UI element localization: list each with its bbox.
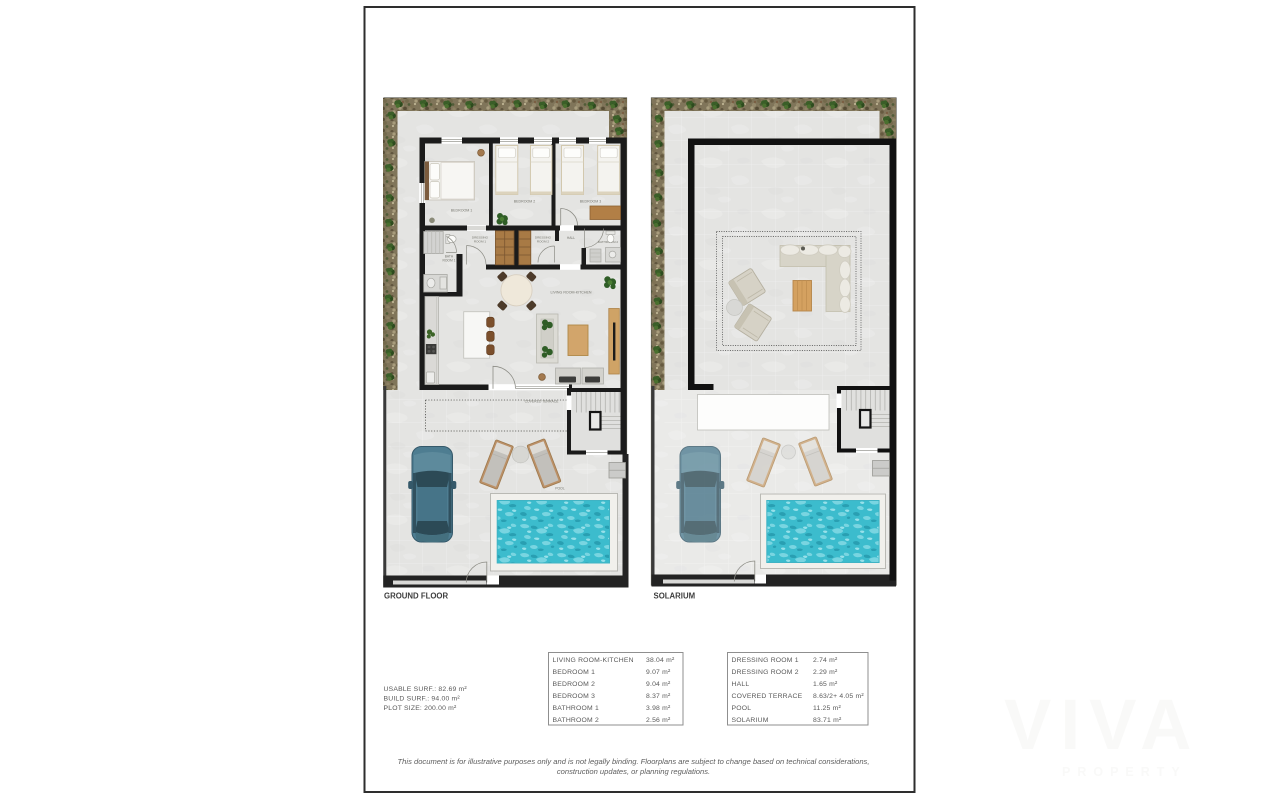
svg-text:SOLARIUM: SOLARIUM	[732, 717, 769, 724]
svg-text:VIVA: VIVA	[1004, 686, 1200, 765]
svg-text:PLOT SIZE: 200.00 m²: PLOT SIZE: 200.00 m²	[384, 705, 458, 712]
svg-text:BUILD SURF.: 94.00 m²: BUILD SURF.: 94.00 m²	[384, 696, 461, 703]
svg-text:DRESSING ROOM 2: DRESSING ROOM 2	[732, 669, 799, 676]
svg-text:BATHROOM 2: BATHROOM 2	[553, 717, 599, 724]
svg-text:COVERED TERRACE: COVERED TERRACE	[732, 693, 803, 700]
svg-text:This document is for illustrat: This document is for illustrative purpos…	[398, 757, 870, 766]
svg-text:9.07 m²: 9.07 m²	[646, 669, 671, 676]
svg-text:POOL: POOL	[555, 487, 565, 491]
svg-text:8.37 m²: 8.37 m²	[646, 693, 671, 700]
svg-text:COVERED TERRACE: COVERED TERRACE	[525, 400, 560, 404]
svg-text:LIVING ROOM-KITCHEN: LIVING ROOM-KITCHEN	[553, 657, 634, 664]
svg-text:ROOM 1: ROOM 1	[442, 259, 455, 263]
svg-text:3.98 m²: 3.98 m²	[646, 705, 671, 712]
svg-text:HALL: HALL	[567, 236, 575, 240]
svg-text:38.04 m²: 38.04 m²	[646, 657, 675, 664]
svg-text:POOL: POOL	[732, 705, 752, 712]
svg-text:83.71 m²: 83.71 m²	[813, 717, 842, 724]
svg-text:BEDROOM 1: BEDROOM 1	[451, 209, 473, 213]
svg-text:USABLE SURF.: 82.69 m²: USABLE SURF.: 82.69 m²	[384, 686, 468, 693]
svg-text:BEDROOM 2: BEDROOM 2	[553, 681, 596, 688]
svg-text:BEDROOM 2: BEDROOM 2	[514, 200, 536, 204]
svg-text:SOLARIUM: SOLARIUM	[654, 592, 696, 601]
svg-text:ROOM 1: ROOM 1	[474, 240, 486, 244]
svg-text:2.74 m²: 2.74 m²	[813, 657, 838, 664]
svg-text:BATHROOM 1: BATHROOM 1	[553, 705, 599, 712]
svg-text:DRESSING ROOM 1: DRESSING ROOM 1	[732, 657, 799, 664]
svg-text:HALL: HALL	[732, 681, 750, 688]
svg-text:2.29 m²: 2.29 m²	[813, 669, 838, 676]
svg-text:2.56 m²: 2.56 m²	[646, 717, 671, 724]
svg-text:8.63/2+ 4.05 m²: 8.63/2+ 4.05 m²	[813, 693, 864, 700]
svg-text:BEDROOM 3: BEDROOM 3	[553, 693, 596, 700]
svg-text:BEDROOM 1: BEDROOM 1	[553, 669, 596, 676]
svg-text:PROPERTY: PROPERTY	[1062, 765, 1187, 779]
svg-text:construction updates, or plann: construction updates, or planning regula…	[557, 767, 710, 776]
svg-text:11.25 m²: 11.25 m²	[813, 705, 841, 712]
svg-text:9.04 m²: 9.04 m²	[646, 681, 671, 688]
svg-text:LIVING ROOM-KITCHEN: LIVING ROOM-KITCHEN	[551, 291, 592, 295]
svg-text:ROOM 2: ROOM 2	[537, 240, 549, 244]
svg-text:1.65 m²: 1.65 m²	[813, 681, 838, 688]
svg-text:GROUND FLOOR: GROUND FLOOR	[384, 592, 448, 601]
svg-text:BEDROOM 3: BEDROOM 3	[580, 200, 602, 204]
